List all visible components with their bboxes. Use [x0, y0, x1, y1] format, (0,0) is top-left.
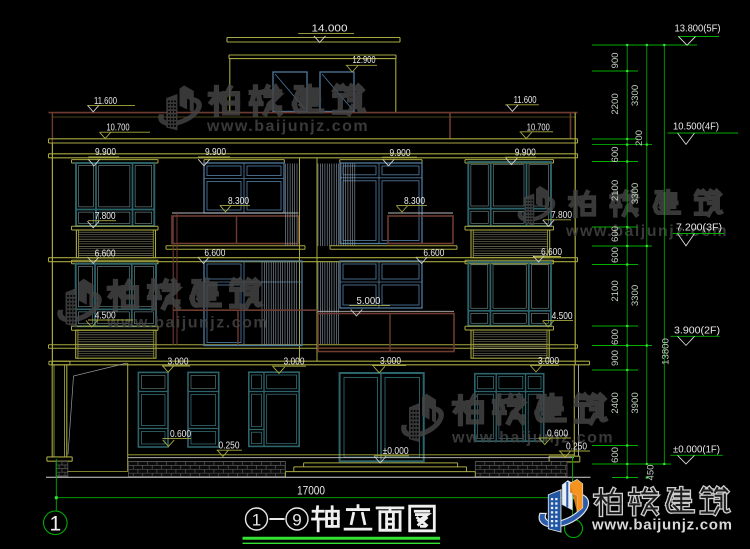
svg-text:13800: 13800: [661, 338, 672, 365]
svg-text:2100: 2100: [610, 280, 621, 301]
svg-text:14.000: 14.000: [312, 24, 349, 35]
svg-text:www.baijunjz.com: www.baijunjz.com: [206, 118, 369, 135]
svg-text:600: 600: [610, 146, 621, 162]
svg-text:www.baijunjz.com: www.baijunjz.com: [106, 315, 269, 332]
svg-text:900: 900: [610, 52, 621, 68]
svg-text:9: 9: [292, 511, 301, 530]
svg-text:600: 600: [610, 247, 621, 263]
svg-text:2100: 2100: [610, 180, 621, 201]
svg-text:3300: 3300: [630, 85, 641, 106]
svg-text:600: 600: [610, 226, 621, 242]
svg-text:2200: 2200: [610, 93, 621, 114]
svg-text:17000: 17000: [297, 484, 325, 498]
svg-text:www.baijunjz.com: www.baijunjz.com: [451, 430, 614, 447]
svg-text:900: 900: [610, 350, 621, 366]
svg-text:3.900(2F): 3.900(2F): [674, 326, 720, 337]
svg-text:3300: 3300: [630, 183, 641, 204]
svg-text:www.baijunjz.com: www.baijunjz.com: [591, 517, 733, 534]
svg-text:13.800(5F): 13.800(5F): [675, 24, 721, 35]
svg-text:450: 450: [646, 464, 657, 480]
svg-text:±0.000(1F): ±0.000(1F): [673, 445, 720, 456]
svg-text:600: 600: [610, 447, 621, 463]
svg-text:2400: 2400: [610, 392, 621, 413]
svg-text:3300: 3300: [630, 285, 641, 306]
svg-text:10.500(4F): 10.500(4F): [673, 122, 719, 133]
svg-text:3900: 3900: [630, 392, 641, 413]
svg-text:12.900: 12.900: [353, 55, 376, 66]
svg-text:1: 1: [252, 511, 261, 530]
svg-text:200: 200: [634, 130, 645, 146]
svg-text:7.200(3F): 7.200(3F): [676, 223, 722, 234]
svg-text:600: 600: [610, 329, 621, 345]
svg-text:1: 1: [49, 513, 61, 536]
